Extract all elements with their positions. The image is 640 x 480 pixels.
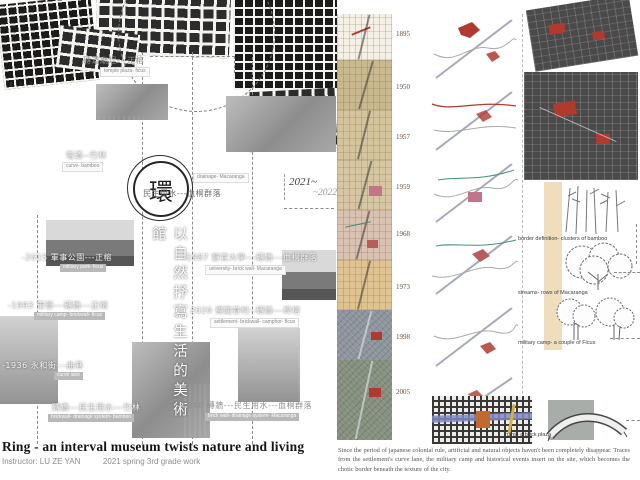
map-stream-line [345, 221, 371, 227]
map-road [357, 14, 370, 59]
guide-line [284, 208, 334, 209]
period-end: ~2022 [289, 188, 337, 198]
map-street-line [539, 107, 616, 142]
connector-dashed [614, 272, 640, 273]
caption-1936-curve-lane: curve lane [54, 372, 83, 380]
caption-1948-brickwall: brick wall- drainage system- Macaranga [205, 413, 299, 421]
ring-plan-graphic [546, 404, 630, 444]
photo-arcade [228, 192, 336, 252]
historic-map-2005 [337, 360, 392, 440]
site-diagram [428, 14, 520, 82]
year-label: 1895 [396, 30, 410, 38]
diagram-graphic [428, 14, 520, 82]
caption-2020-settlement: settlement- brickwall- camphor- ficus [210, 318, 299, 328]
label-1936-curve-lane: -1936 永和街---曲巷 [2, 360, 83, 371]
year-label: 1959 [396, 183, 410, 191]
map-highlight [371, 332, 382, 340]
site-diagram [428, 302, 520, 370]
diagram-graphic [428, 302, 520, 370]
label-brickwall-bamboo: 磚牆---民生用水---竹林 [52, 402, 140, 413]
credits-instructor: Instructor: LU ZE YAN [2, 457, 80, 466]
dark-site-map-large [524, 72, 638, 180]
map-road [357, 261, 371, 310]
photo-ficus [298, 350, 336, 438]
map-road [356, 211, 371, 260]
map-road [355, 361, 374, 440]
label-curve-bamboo: 彎道--竹林 [66, 150, 107, 161]
poster-credits: Instructor: LU ZE YAN 2021 spring 3rd gr… [2, 457, 200, 466]
label-2015-military-park: -2015 軍事公園---正榕 [22, 252, 112, 263]
historic-map-1998 [337, 310, 392, 360]
note-ficus: military camp- a couple of Ficus [518, 340, 595, 346]
historic-map-1973 [337, 260, 392, 310]
map-road [357, 111, 371, 160]
map-site-highlight [476, 411, 490, 428]
site-diagram [428, 86, 520, 154]
credits-work: 2021 spring 3rd grade work [103, 457, 200, 466]
dark-site-map [526, 0, 638, 72]
ring-plan-sketch [546, 404, 630, 449]
macaranga-sketch [552, 240, 640, 295]
historic-map-1895 [337, 14, 392, 60]
period-start: 2021~ [289, 176, 337, 188]
caption-2015-military-park: military park- ficus [60, 264, 106, 272]
map-highlight [369, 186, 382, 196]
site-diagram [428, 230, 520, 298]
year-label: 1950 [396, 83, 410, 91]
photo-street-trees [0, 82, 60, 182]
year-label: 2005 [396, 388, 410, 396]
photo-brick-wall [238, 328, 300, 402]
presentation-board: 環 以自然抒寫生活的美術館 2021~ ~2022 磚道廟埕---正榕 temp… [0, 0, 640, 480]
site-diagram [428, 158, 520, 226]
diagram-graphic [428, 86, 520, 154]
map-road [358, 61, 374, 110]
bamboo-sketch [556, 182, 636, 239]
diagram-graphic [428, 230, 520, 298]
caption-curve-bamboo: curve- bamboo [62, 162, 103, 172]
caption-brickwall-bamboo: brickwall- drainage system- bamboo [48, 414, 134, 422]
label-2020-settlement: 2020 模範眷村--磚牆---樟榕 [190, 305, 300, 316]
column-dashed-divider [522, 14, 523, 434]
historic-map-1959 [337, 160, 392, 210]
map-highlight [592, 31, 605, 41]
year-label: 1998 [396, 333, 410, 341]
poster-title: Ring - an interval museum twists nature … [2, 439, 332, 455]
caption-drainage-macaranga: drainage- Macaranga [193, 173, 249, 183]
map-highlight [369, 388, 381, 397]
map-road [358, 161, 373, 210]
year-label: 1968 [396, 230, 410, 238]
map-highlight [367, 240, 378, 248]
label-1987-university: -1987 靜宜大學---磚牆---血桐群落 [183, 252, 317, 263]
poster-description: Since the period of japanese colonial ru… [338, 446, 630, 474]
ficus-sketch-graphic [544, 296, 640, 342]
label-1993-military-camp: -1993 軍營---磚牆---正榕 [8, 300, 108, 311]
connector-dashed [636, 224, 637, 264]
map-rail-line [351, 26, 370, 35]
period-box: 2021~ ~2022 [284, 174, 341, 200]
caption-temple-plaza: temple plaza- ficus [100, 67, 150, 77]
macaranga-sketch-graphic [552, 240, 640, 290]
photo-rooftops [96, 84, 168, 120]
photo-buildings [226, 96, 336, 152]
caption-1993-military-camp: military camp- brickwall- ficus [34, 312, 105, 320]
year-label: 1957 [396, 133, 410, 141]
year-label: 1973 [396, 283, 410, 291]
diagram-graphic [428, 158, 520, 226]
caption-1987-university: university- brick wall- Macaranga [205, 265, 286, 275]
map-highlight [548, 23, 565, 35]
connector-dashed [610, 338, 640, 339]
historic-map-1968 [337, 210, 392, 260]
historic-map-1957 [337, 110, 392, 160]
label-1948-brickwall: -1948 磚牆---民生用水---血桐群落 [178, 400, 312, 411]
bamboo-sketch-graphic [556, 182, 636, 234]
historic-map-1950 [337, 60, 392, 110]
label-drainage-macaranga: 民生用水---血桐群落 [143, 188, 221, 199]
label-temple-plaza: 磚道廟埕---正榕 [83, 55, 144, 66]
note-brick-plaza: ruins- a brick plaza [505, 432, 551, 438]
